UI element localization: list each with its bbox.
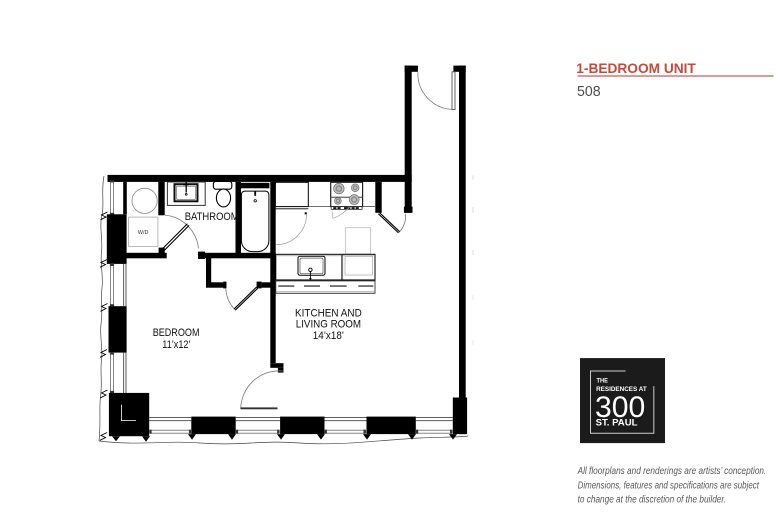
svg-text:W/D: W/D bbox=[138, 230, 149, 236]
svg-text:All floorplans and renderings: All floorplans and renderings are artist… bbox=[577, 466, 767, 477]
svg-text:KITCHEN AND: KITCHEN AND bbox=[295, 307, 362, 319]
svg-text:THE: THE bbox=[597, 377, 609, 384]
svg-text:1-BEDROOM UNIT: 1-BEDROOM UNIT bbox=[576, 60, 696, 76]
svg-text:508: 508 bbox=[577, 84, 601, 100]
svg-text:BATHROOM: BATHROOM bbox=[185, 211, 239, 223]
svg-text:BEDROOM: BEDROOM bbox=[153, 327, 200, 339]
svg-text:to change at the discretion of: to change at the discretion of the build… bbox=[578, 495, 727, 506]
svg-text:LIVING ROOM: LIVING ROOM bbox=[296, 319, 361, 331]
svg-text:ST. PAUL: ST. PAUL bbox=[596, 418, 639, 428]
svg-text:11’x12’: 11’x12’ bbox=[162, 339, 190, 351]
svg-text:14’x18’: 14’x18’ bbox=[313, 330, 344, 342]
svg-text:Dimensions, features and speci: Dimensions, features and specifications … bbox=[578, 480, 760, 491]
